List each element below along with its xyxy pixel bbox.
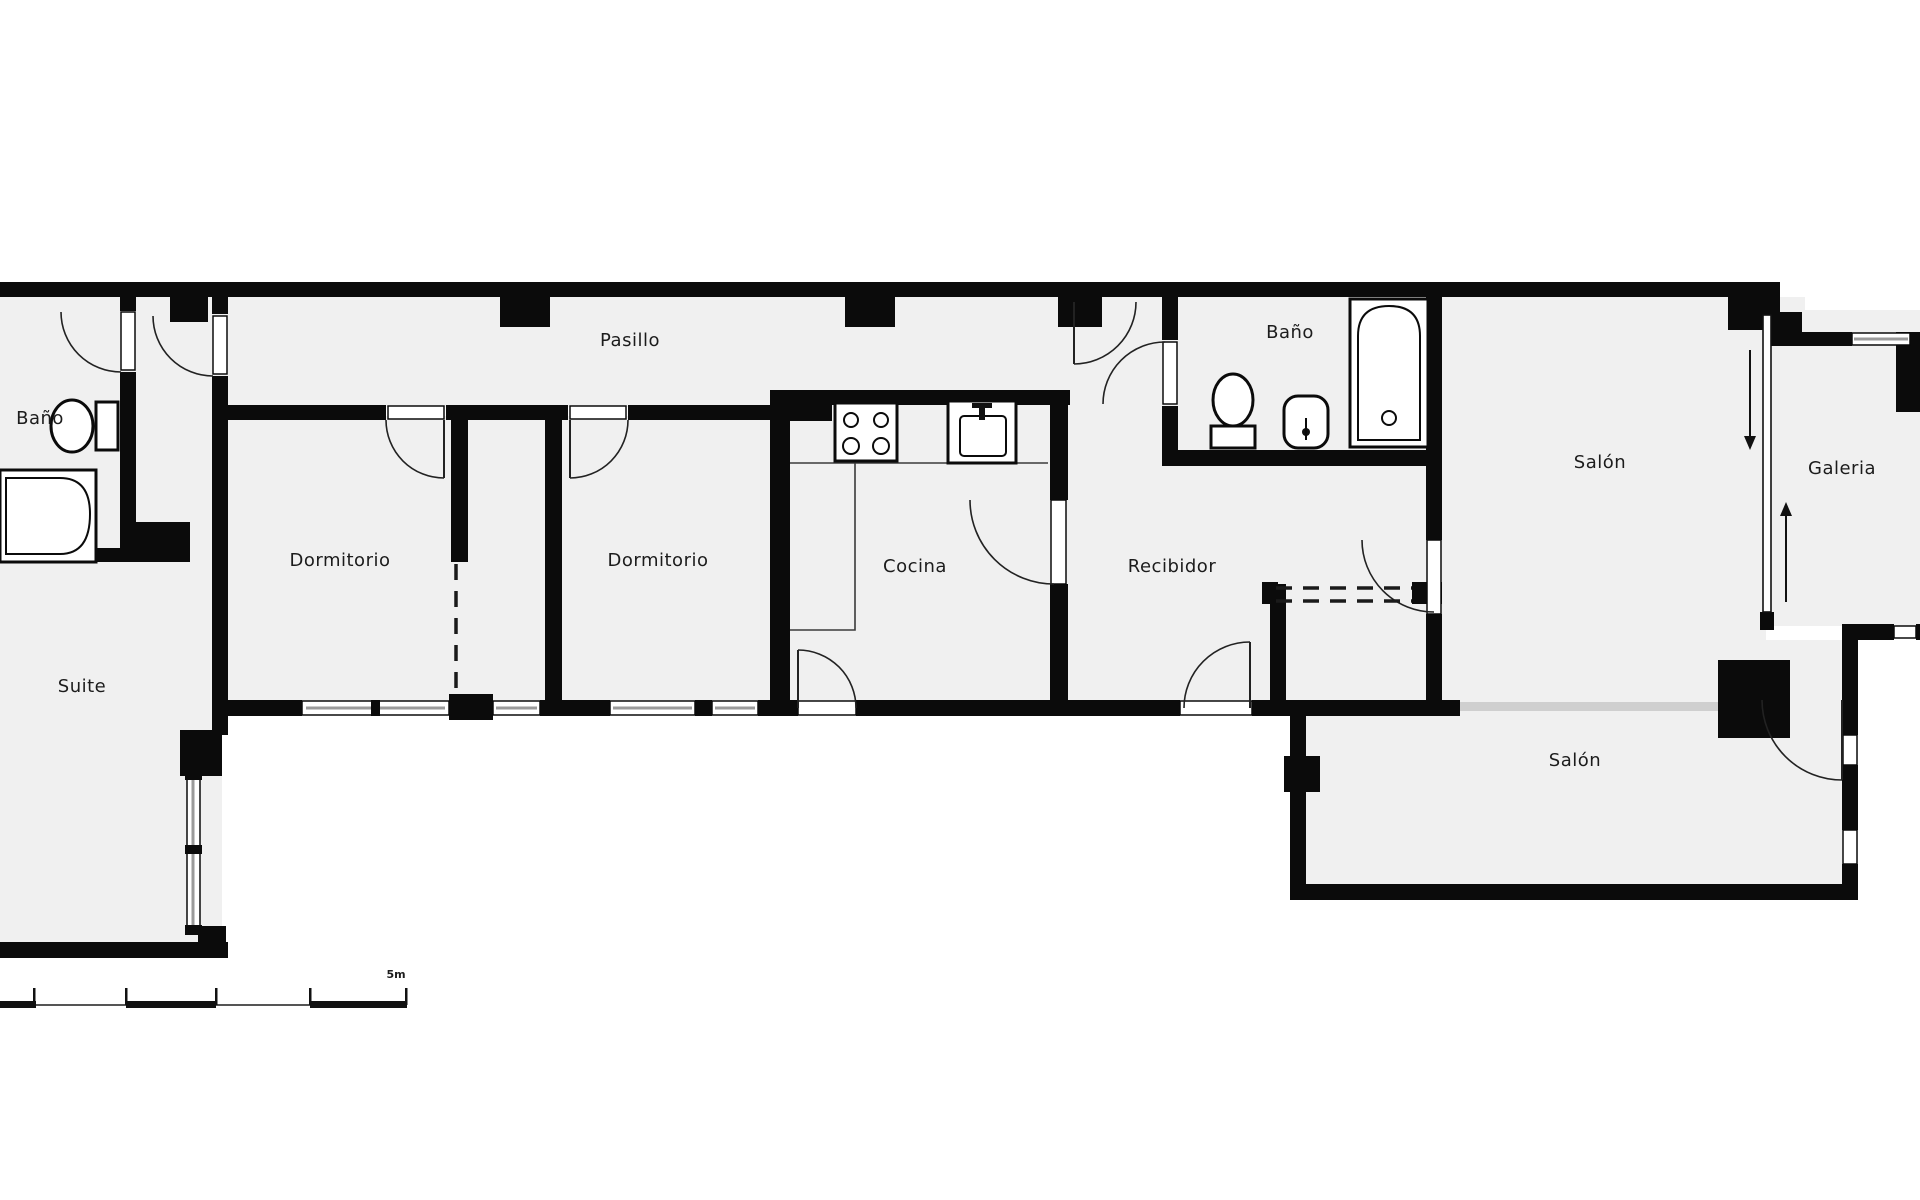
window-dormitorio2-bottom-2 [712, 701, 758, 715]
label-salon-south: Salón [1549, 750, 1601, 771]
bathtub-icon [0, 470, 96, 562]
window-salon-south-right-2 [1843, 830, 1857, 864]
void-between-dorms [466, 418, 546, 562]
label-dormitorio-1: Dormitorio [290, 550, 391, 571]
stove-icon [835, 403, 897, 461]
label-bano-right: Baño [1266, 322, 1314, 343]
scale-bar: 5m [0, 968, 408, 1008]
open-passage [1460, 702, 1718, 711]
label-dormitorio-2: Dormitorio [608, 550, 709, 571]
window-top-right [1852, 333, 1910, 345]
window-galeria-bottom [1894, 626, 1916, 638]
label-salon-north: Salón [1574, 452, 1626, 473]
window-dormitorio1-bottom-2 [493, 701, 540, 715]
bathtub-icon [1350, 299, 1428, 447]
window-dormitorio1-bottom [302, 700, 449, 716]
galeria-door-gap-floor [1788, 688, 1844, 716]
bidet-icon [1284, 396, 1328, 448]
floorplan-drawing: Pasillo Baño Suite Dormitorio Dormitorio… [0, 0, 1920, 1200]
kitchen-sink-icon [948, 401, 1016, 463]
label-galeria: Galeria [1808, 458, 1876, 479]
window-suite-east [185, 770, 202, 935]
window-dormitorio2-bottom [610, 701, 695, 715]
label-cocina: Cocina [883, 556, 947, 577]
label-suite: Suite [58, 676, 106, 697]
label-recibidor: Recibidor [1128, 556, 1217, 577]
window-salon-south-right-1 [1843, 735, 1857, 765]
label-bano-left: Baño [16, 408, 64, 429]
label-pasillo: Pasillo [600, 330, 660, 351]
toilet-icon [1211, 374, 1255, 448]
floorplan-page: Pasillo Baño Suite Dormitorio Dormitorio… [0, 0, 1920, 1200]
scale-bar-label: 5m [386, 968, 405, 981]
wardrobe-dormitorio-1 [460, 558, 546, 702]
